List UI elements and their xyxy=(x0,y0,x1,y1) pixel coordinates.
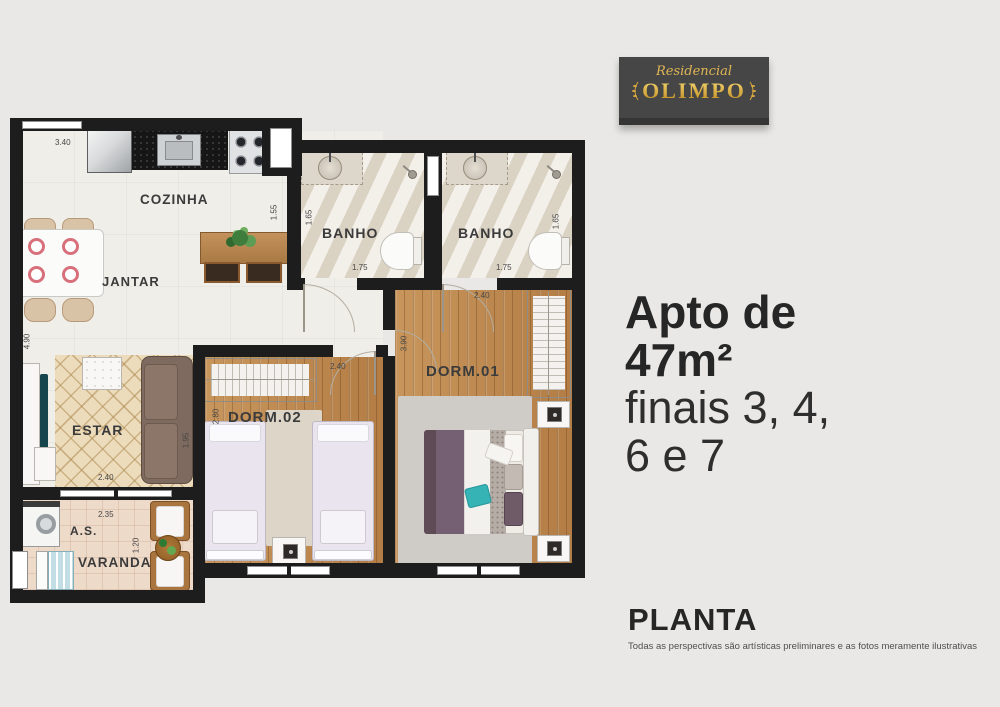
plant-icon xyxy=(232,230,248,246)
entry-door xyxy=(270,128,292,168)
headboard xyxy=(523,428,539,536)
lamp-icon xyxy=(547,541,562,556)
window-tick xyxy=(287,565,291,576)
room-label-banho-2: BANHO xyxy=(458,225,514,241)
door-leaf xyxy=(303,284,305,332)
plate-icon xyxy=(62,238,79,255)
shower-icon xyxy=(552,170,561,179)
laundry-tank xyxy=(36,551,48,590)
stool xyxy=(204,262,240,283)
brand-name-text: OLIMPO xyxy=(642,80,746,102)
laurel-right-icon xyxy=(748,81,757,101)
wall xyxy=(10,590,205,603)
sofa-cushion xyxy=(144,364,178,420)
dim-dorm2-prof: 2.80 xyxy=(212,405,221,429)
room-label-banho-1: BANHO xyxy=(322,225,378,241)
room-label-dorm-2: DORM.02 xyxy=(228,409,302,426)
legal-disclaimer: Todas as perspectivas são artísticas pre… xyxy=(628,641,977,652)
wall xyxy=(383,278,395,330)
shaft-window xyxy=(427,156,439,196)
marketing-floorplan-page: COZINHA JANTAR ESTAR BANHO BANHO DORM.02… xyxy=(0,0,1000,707)
wardrobe xyxy=(203,358,317,402)
dim-varanda-prof: 1.20 xyxy=(132,534,141,558)
wall xyxy=(193,345,333,357)
dining-chair xyxy=(24,298,56,322)
wall xyxy=(10,118,23,603)
lamp-icon xyxy=(547,407,562,422)
wardrobe-rail xyxy=(206,379,314,380)
service-door xyxy=(12,551,28,589)
headline-line-4: 6 e 7 xyxy=(625,432,830,480)
apartment-headline: Apto de 47m² finais 3, 4, 6 e 7 xyxy=(625,288,830,480)
headline-line-3: finais 3, 4, xyxy=(625,384,830,432)
footboard xyxy=(206,550,264,560)
room-label-jantar: JANTAR xyxy=(102,274,160,289)
dim-dorm1-prof: 3.90 xyxy=(400,332,409,356)
dim-hall-entrada: 1.55 xyxy=(270,201,279,225)
fridge xyxy=(87,128,132,173)
plate-icon xyxy=(62,266,79,283)
headline-line-2: 47m² xyxy=(625,336,830,384)
laundry-rack xyxy=(48,551,74,590)
armchair-cushion xyxy=(156,506,184,537)
window xyxy=(22,121,82,129)
wall xyxy=(572,140,585,578)
stool xyxy=(246,262,282,283)
wall xyxy=(497,278,585,290)
brand-script-text: Residencial xyxy=(619,64,769,79)
pillow xyxy=(504,492,523,526)
dim-cozinha-largura: 3.40 xyxy=(55,138,71,147)
dining-chair xyxy=(62,298,94,322)
plate-icon xyxy=(28,238,45,255)
door-leaf xyxy=(442,284,444,332)
planta-title: PLANTA xyxy=(628,602,757,638)
dim-estar-prof: 1.95 xyxy=(182,429,191,453)
dim-banho2-larg: 1.75 xyxy=(496,263,512,272)
faucet-icon xyxy=(474,153,476,162)
duvet-fold xyxy=(464,430,490,534)
faucet-icon xyxy=(176,135,182,140)
wardrobe xyxy=(527,288,571,398)
footboard xyxy=(314,550,372,560)
foot-cushion xyxy=(212,510,258,544)
room-label-dorm-1: DORM.01 xyxy=(426,363,500,380)
dim-banho1-larg: 1.75 xyxy=(352,263,368,272)
laurel-left-icon xyxy=(631,81,640,101)
duvet xyxy=(424,430,464,534)
dim-as-largura: 2.35 xyxy=(98,510,114,519)
plant-icon xyxy=(167,546,176,555)
pillow xyxy=(504,464,523,490)
dim-sala-comprimento: 4.90 xyxy=(23,330,32,354)
brand-logo: Residencial OLIMPO xyxy=(619,57,769,125)
window-tick xyxy=(477,565,481,576)
dim-banho1-prof: 1.65 xyxy=(305,206,314,230)
ottoman xyxy=(82,357,122,390)
toilet-bowl xyxy=(528,232,562,270)
plate-icon xyxy=(28,266,45,283)
door-tick xyxy=(114,489,118,498)
room-label-estar: ESTAR xyxy=(72,422,123,438)
wardrobe-rail xyxy=(548,291,549,395)
toilet-bowl xyxy=(380,232,414,270)
wall xyxy=(383,356,395,578)
dim-dorm1-largura: 2.40 xyxy=(474,291,490,300)
shower-icon xyxy=(408,170,417,179)
faucet-icon xyxy=(329,153,331,162)
foot-cushion xyxy=(320,510,366,544)
plant-icon xyxy=(159,539,167,547)
headline-line-1: Apto de xyxy=(625,288,830,336)
pillow xyxy=(317,424,369,442)
room-label-as: A.S. xyxy=(70,524,97,538)
dim-estar-largura: 2.40 xyxy=(98,473,114,482)
wall xyxy=(376,345,388,357)
dim-dorm2-largura: 2.40 xyxy=(330,362,346,371)
lamp-icon xyxy=(283,544,298,559)
side-table xyxy=(34,447,56,481)
sofa-cushion xyxy=(144,423,178,479)
door-leaf xyxy=(374,351,376,395)
dim-banho2-prof: 1.65 xyxy=(552,210,561,234)
washer-door-icon xyxy=(36,514,56,534)
room-label-cozinha: COZINHA xyxy=(140,192,209,207)
kitchen-sink-basin xyxy=(165,141,193,160)
